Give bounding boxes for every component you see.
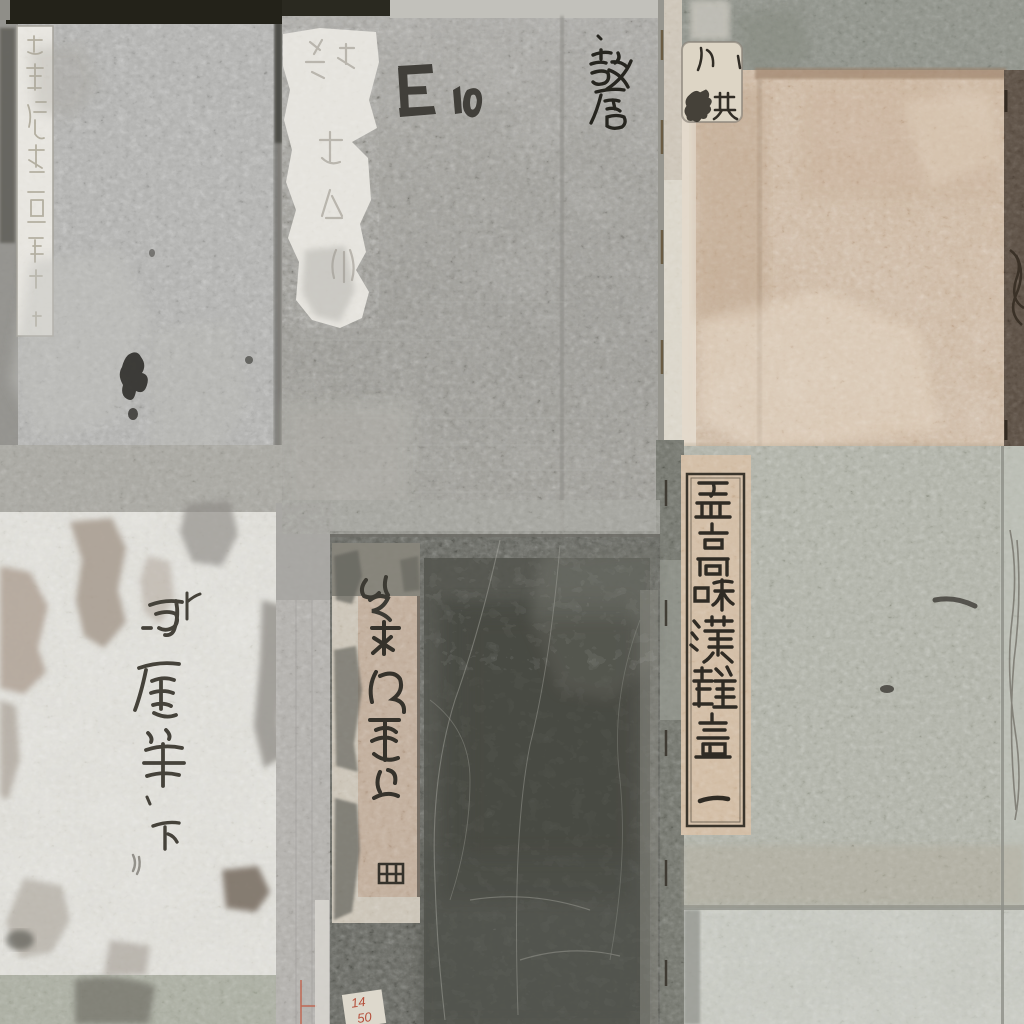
svg-text:14: 14 — [350, 994, 366, 1011]
svg-text:50: 50 — [356, 1009, 373, 1024]
